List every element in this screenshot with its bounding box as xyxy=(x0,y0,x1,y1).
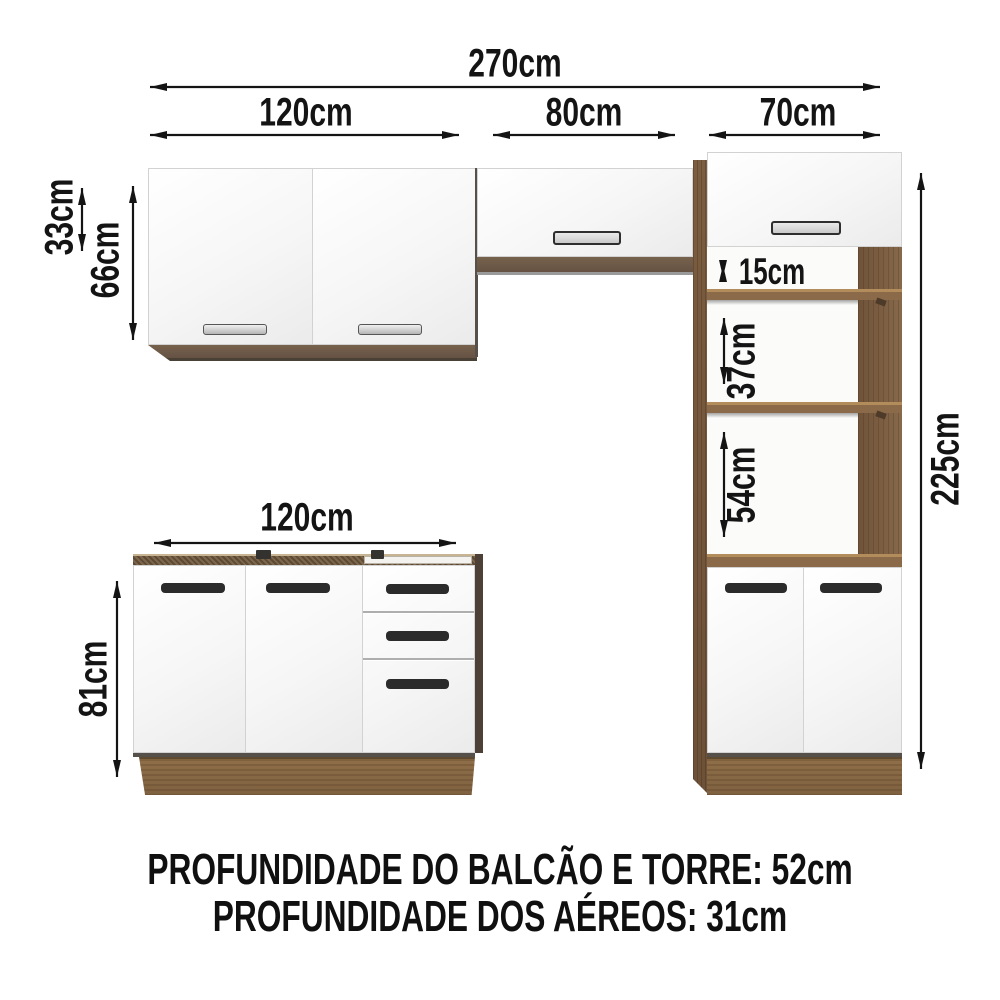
kitchen-dimension-diagram: 270cm 120cm 80cm 70cm 33cm 66cm 15cm 37c… xyxy=(0,0,1000,1000)
label-upper-mid-height: 33cm xyxy=(38,179,83,256)
label-tower-width: 70cm xyxy=(760,91,837,136)
label-upper-height: 66cm xyxy=(84,222,129,299)
label-niche-top: 15cm xyxy=(739,251,805,293)
label-total-width: 270cm xyxy=(468,42,561,87)
label-niche-middle: 37cm xyxy=(720,323,765,400)
label-niche-bottom: 54cm xyxy=(720,447,765,524)
dimension-arrows xyxy=(0,0,1000,1000)
label-upper-left-width: 120cm xyxy=(259,91,352,136)
label-base-width: 120cm xyxy=(260,496,353,541)
label-upper-mid-width: 80cm xyxy=(546,91,623,136)
label-base-height: 81cm xyxy=(72,641,117,718)
label-tower-height: 225cm xyxy=(924,412,969,505)
